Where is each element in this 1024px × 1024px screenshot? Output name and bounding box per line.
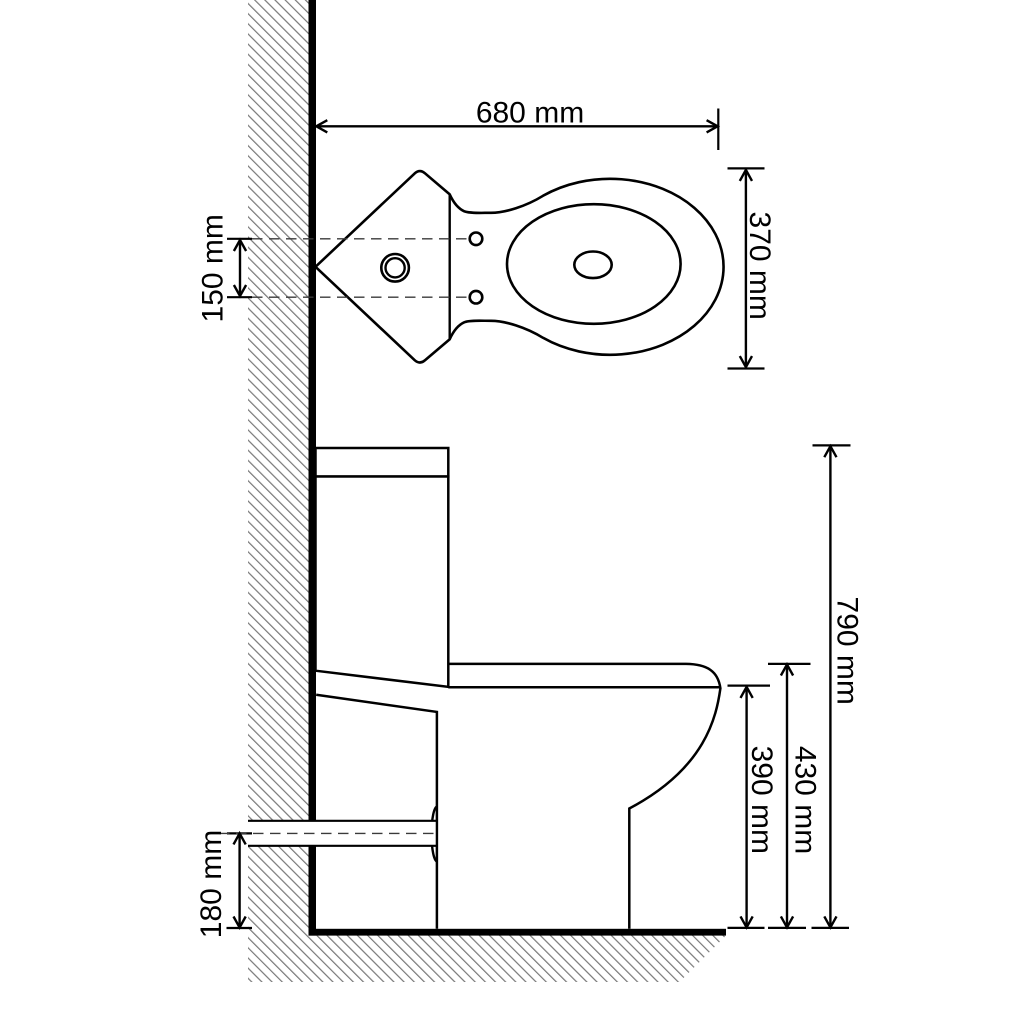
svg-text:680 mm: 680 mm	[476, 97, 584, 130]
svg-text:790 mm: 790 mm	[831, 597, 864, 705]
svg-text:180 mm: 180 mm	[195, 830, 228, 938]
svg-text:150 mm: 150 mm	[197, 214, 230, 322]
svg-text:370 mm: 370 mm	[743, 212, 776, 320]
svg-text:430 mm: 430 mm	[789, 746, 822, 854]
svg-text:390 mm: 390 mm	[745, 746, 778, 854]
